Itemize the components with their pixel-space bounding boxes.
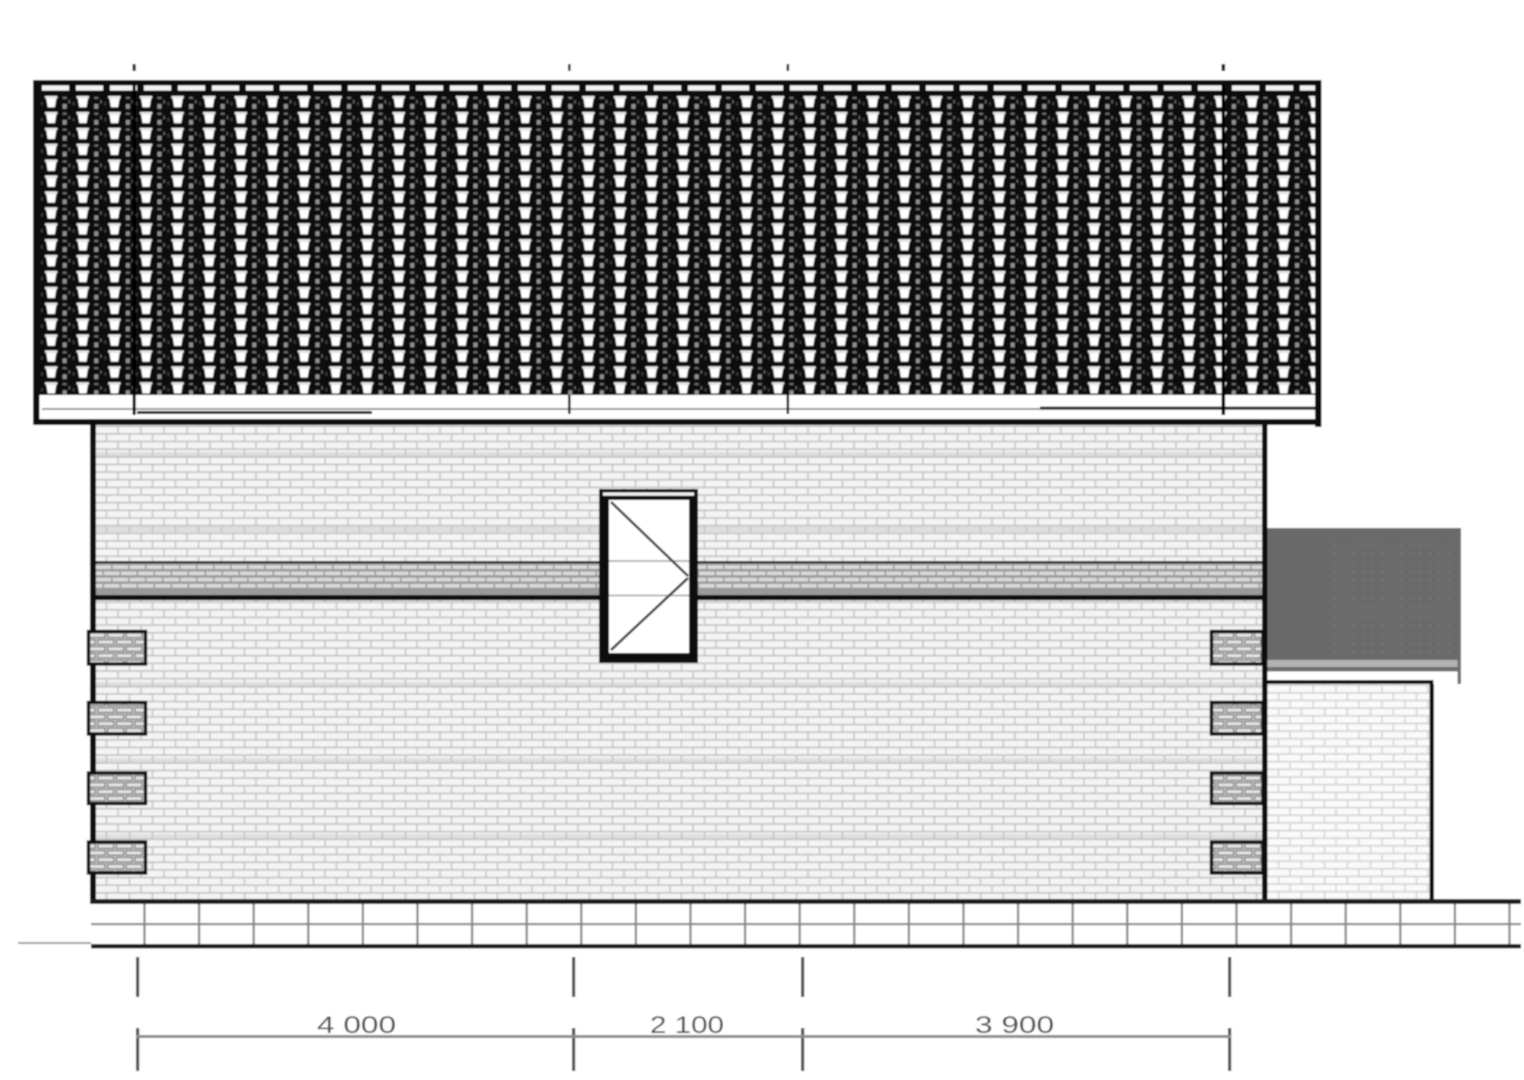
svg-text:4 000: 4 000 <box>317 1012 396 1039</box>
svg-text:2 100: 2 100 <box>650 1012 724 1039</box>
svg-text:3 900: 3 900 <box>975 1012 1054 1039</box>
